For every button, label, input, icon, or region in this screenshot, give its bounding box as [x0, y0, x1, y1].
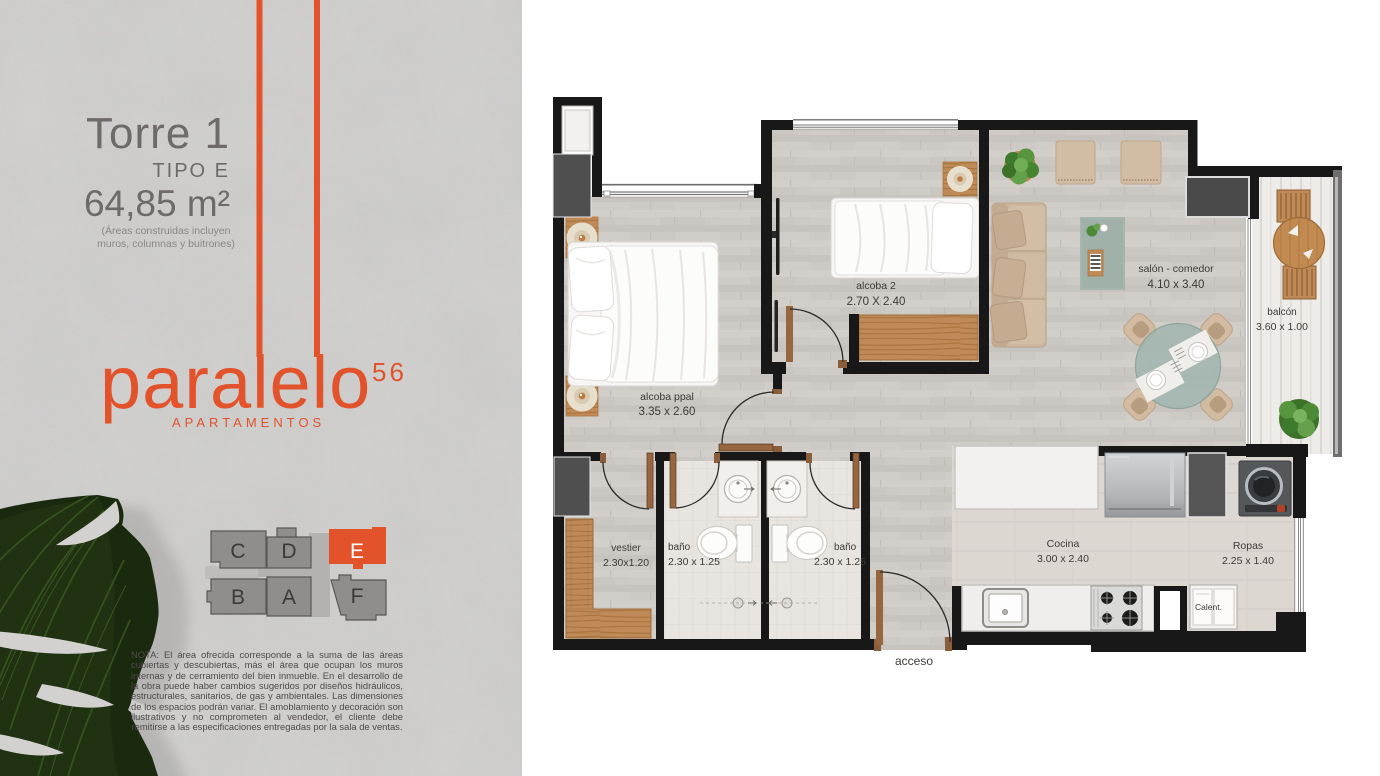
svg-text:Cocina: Cocina	[1047, 538, 1080, 550]
svg-text:baño: baño	[834, 542, 857, 553]
svg-text:2.30x1.20: 2.30x1.20	[603, 557, 649, 569]
svg-text:2.30 x 1.25: 2.30 x 1.25	[814, 556, 866, 568]
svg-text:2.30 x 1.25: 2.30 x 1.25	[668, 556, 720, 568]
svg-text:alcoba ppal: alcoba ppal	[640, 391, 694, 403]
svg-text:vestier: vestier	[611, 543, 641, 554]
svg-text:2.25 x 1.40: 2.25 x 1.40	[1222, 555, 1274, 567]
svg-text:3.00 x 2.40: 3.00 x 2.40	[1037, 553, 1089, 565]
svg-text:3.35 x 2.60: 3.35 x 2.60	[639, 406, 696, 418]
svg-text:salón - comedor: salón - comedor	[1138, 263, 1214, 275]
svg-text:4.10 x 3.40: 4.10 x 3.40	[1148, 279, 1205, 291]
svg-text:Ropas: Ropas	[1233, 540, 1263, 552]
svg-text:Calent.: Calent.	[1195, 602, 1222, 612]
svg-text:alcoba 2: alcoba 2	[856, 280, 896, 292]
svg-text:baño: baño	[668, 542, 691, 553]
svg-text:balcón: balcón	[1267, 307, 1296, 318]
svg-text:3.60 x 1.00: 3.60 x 1.00	[1256, 321, 1308, 333]
svg-text:acceso: acceso	[895, 654, 933, 668]
svg-text:2.70 X 2.40: 2.70 X 2.40	[847, 296, 906, 308]
